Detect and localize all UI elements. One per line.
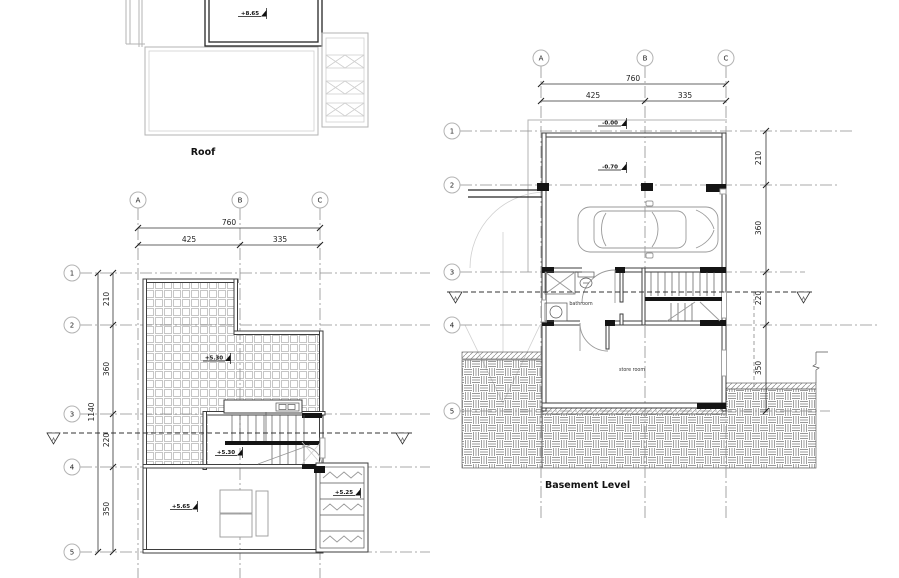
grid-bubble-label: 3: [450, 269, 454, 277]
roof-elevation-marker: +8.65: [238, 8, 267, 19]
dim-height-1: 210: [102, 292, 111, 307]
bed-icon: [220, 490, 268, 537]
room-label-bathroom: bathroom: [569, 301, 593, 307]
elevation-label: +5.30: [217, 450, 235, 456]
roof-pergola: [322, 33, 368, 127]
dim-height-3: 220: [754, 291, 763, 306]
dim-height-4: 350: [102, 502, 111, 517]
grid-bubble-label: B: [238, 197, 243, 205]
roof-outline: [126, 0, 322, 135]
terrace-bench: [224, 400, 302, 413]
dim-total-width: 760: [626, 74, 641, 83]
plan-title-roof: Roof: [191, 147, 216, 158]
dim-width-1: 425: [586, 91, 601, 100]
basement-plan: A B C 1 2 3 4 5 760 425 33: [444, 50, 880, 520]
roof-plan: +8.65 Roof: [126, 0, 368, 158]
grid-bubble-label: A: [136, 197, 141, 205]
elevation-label: +5.30: [205, 356, 223, 362]
dim-total-width: 760: [222, 218, 237, 227]
grid-bubble-label: 5: [70, 549, 74, 557]
grid-bubble-label: C: [318, 197, 323, 205]
elevation-label: +8.65: [241, 11, 259, 17]
floor-plan-drawing: +8.65 Roof A B C: [0, 0, 899, 578]
dim-width-2: 335: [678, 91, 693, 100]
bathroom-fixtures: bathroom: [545, 272, 594, 321]
grid-bubble-label: B: [643, 55, 648, 63]
basement-elevation-markers: -0.00 -0.70: [598, 118, 627, 173]
basement-stair: [645, 272, 722, 321]
room-label-store: store room: [619, 367, 645, 373]
dim-height-2: 360: [754, 221, 763, 236]
dim-height-3: 220: [102, 433, 111, 448]
dim-height-4: 350: [754, 361, 763, 376]
terrace-planter: +5.25: [314, 463, 368, 552]
dim-height-1: 210: [754, 151, 763, 166]
grid-bubble-label: 1: [450, 128, 454, 136]
elevation-label: -0.00: [602, 121, 618, 127]
grid-bubble-label: 4: [70, 464, 75, 472]
dim-total-height: 1140: [87, 402, 96, 421]
grid-bubble-label: 2: [450, 182, 454, 190]
grid-bubble-label: 3: [70, 411, 74, 419]
dim-width-1: 425: [182, 235, 197, 244]
plan-title-basement: Basement Level: [545, 480, 630, 491]
elevation-label: +5.65: [172, 504, 190, 510]
elevation-label: +5.25: [335, 490, 353, 496]
grid-bubble-label: 2: [70, 322, 74, 330]
overhang-outline: [528, 120, 727, 272]
grid-bubble-label: 4: [450, 322, 455, 330]
terrace-plan: A B C 1 2 3 4 5 760 425 33: [47, 192, 430, 578]
grid-bubble-label: 1: [70, 270, 74, 278]
grid-bubble-label: A: [539, 55, 544, 63]
dim-height-2: 360: [102, 362, 111, 377]
car-icon: [578, 201, 718, 258]
elevation-label: -0.70: [602, 165, 618, 171]
door-swings: [580, 270, 615, 351]
dim-width-2: 335: [273, 235, 288, 244]
sink-icon: [545, 303, 567, 321]
grid-bubble-label: 5: [450, 408, 454, 416]
grid-bubble-label: C: [724, 55, 729, 63]
terrace-tile-floor: [146, 283, 320, 466]
